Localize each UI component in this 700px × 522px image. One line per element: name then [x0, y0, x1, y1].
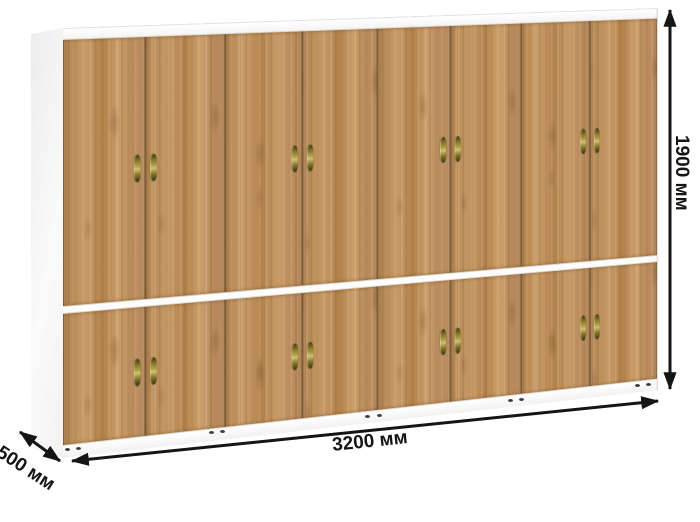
wardrobe-foot — [220, 430, 225, 433]
door-handle — [594, 128, 600, 154]
door-handle — [134, 154, 141, 182]
wardrobe-door — [450, 274, 521, 402]
height-dimension-label: 1900 мм — [670, 135, 692, 211]
wardrobe-door — [590, 262, 657, 386]
wardrobe-door — [377, 280, 450, 410]
door-handle — [307, 341, 313, 368]
wardrobe-foot — [76, 447, 81, 450]
wardrobe-product-image: 1900 мм 3200 мм 500 мм — [0, 0, 700, 522]
door-handle — [150, 154, 157, 182]
wardrobe-door — [450, 24, 521, 273]
wardrobe-door — [225, 293, 302, 427]
door-handle — [134, 358, 141, 386]
door-handle — [440, 137, 446, 163]
door-handle — [291, 343, 297, 370]
door-handle — [307, 144, 313, 171]
wardrobe-door — [302, 287, 377, 419]
width-dimension-label: 3200 мм — [314, 425, 426, 458]
wardrobe-foot — [646, 383, 651, 386]
wardrobe-door — [145, 34, 225, 299]
wardrobe-foot — [209, 431, 214, 434]
wardrobe-side-panel — [31, 28, 64, 458]
wardrobe-door — [63, 307, 145, 445]
wardrobe-door — [377, 26, 450, 279]
wardrobe-foot — [65, 448, 70, 451]
wardrobe-door — [302, 29, 377, 286]
door-handle — [455, 136, 461, 162]
wardrobe-door — [225, 31, 302, 292]
door-handle — [455, 327, 461, 354]
wardrobe-foot — [365, 415, 370, 418]
door-handle — [580, 315, 586, 341]
door-handle — [594, 313, 600, 339]
wardrobe-foot — [519, 398, 524, 401]
wardrobe-foot — [377, 414, 382, 417]
door-handle — [150, 356, 157, 384]
wardrobe-foot — [508, 399, 513, 402]
wardrobe-foot — [635, 384, 640, 387]
door-handle — [440, 328, 446, 355]
wardrobe-door — [521, 21, 590, 267]
wardrobe-door — [521, 268, 590, 394]
door-handle — [291, 145, 297, 172]
door-handle — [580, 129, 586, 155]
wardrobe-door — [590, 19, 657, 261]
wardrobe-door — [145, 300, 225, 436]
wardrobe-front — [63, 8, 658, 458]
wardrobe-door — [63, 37, 145, 306]
